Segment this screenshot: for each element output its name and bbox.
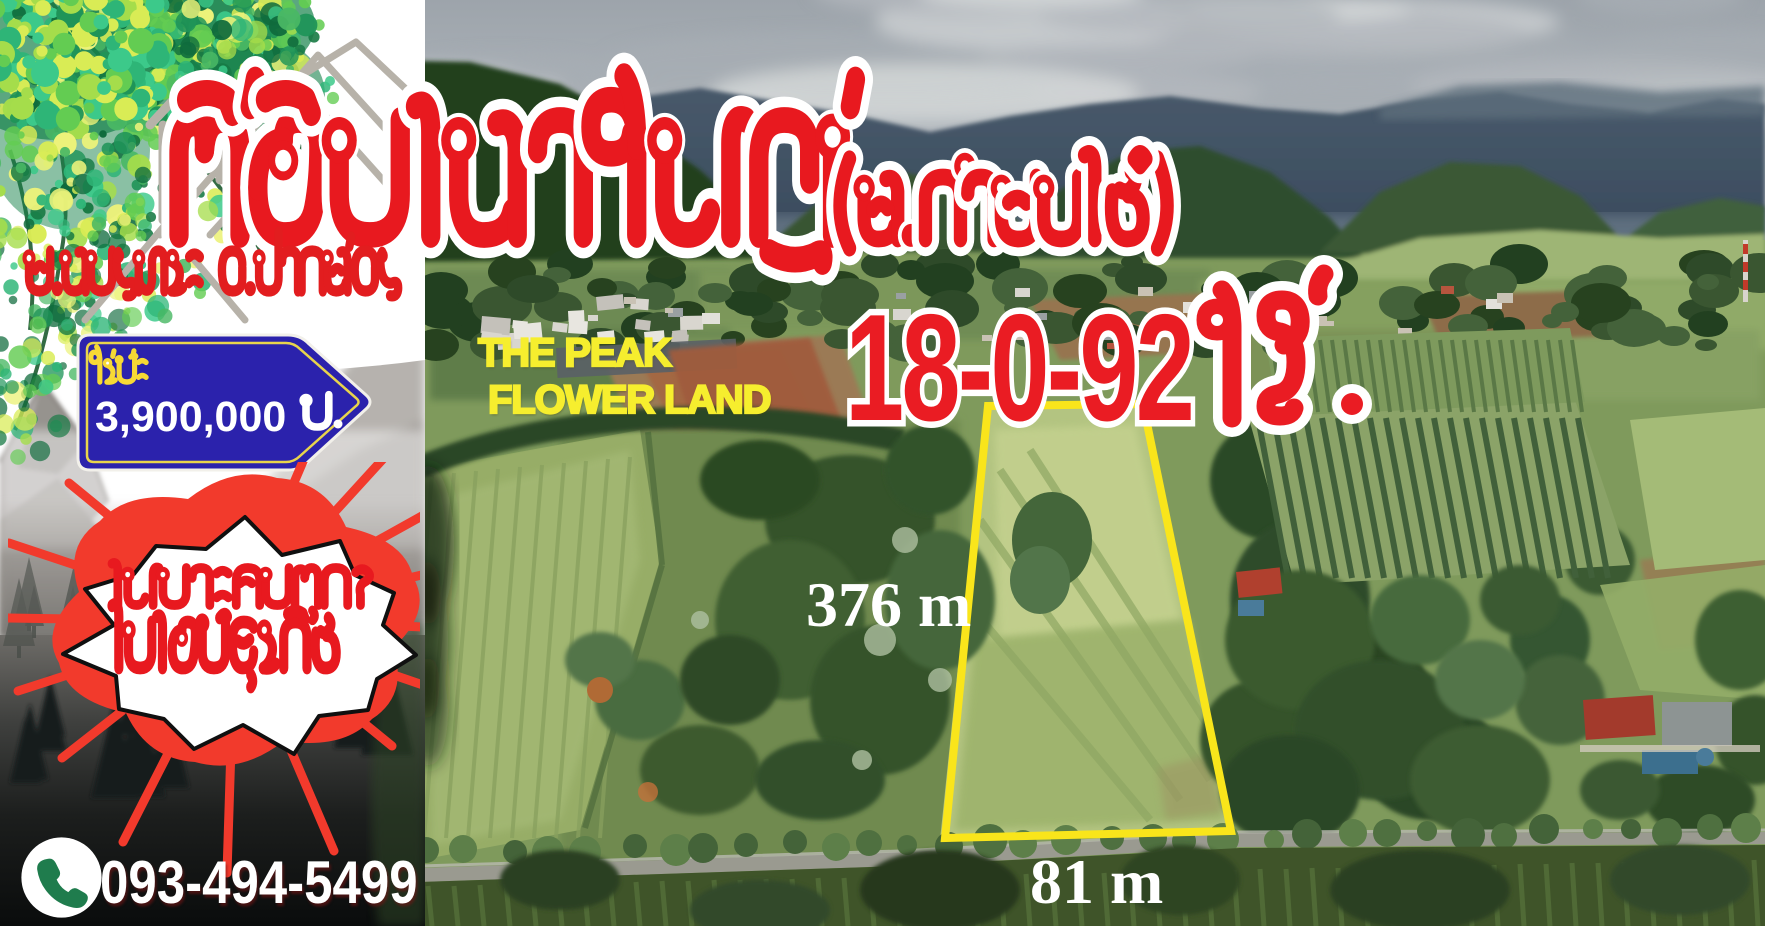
- svg-text:18-0-92: 18-0-92: [845, 282, 1192, 452]
